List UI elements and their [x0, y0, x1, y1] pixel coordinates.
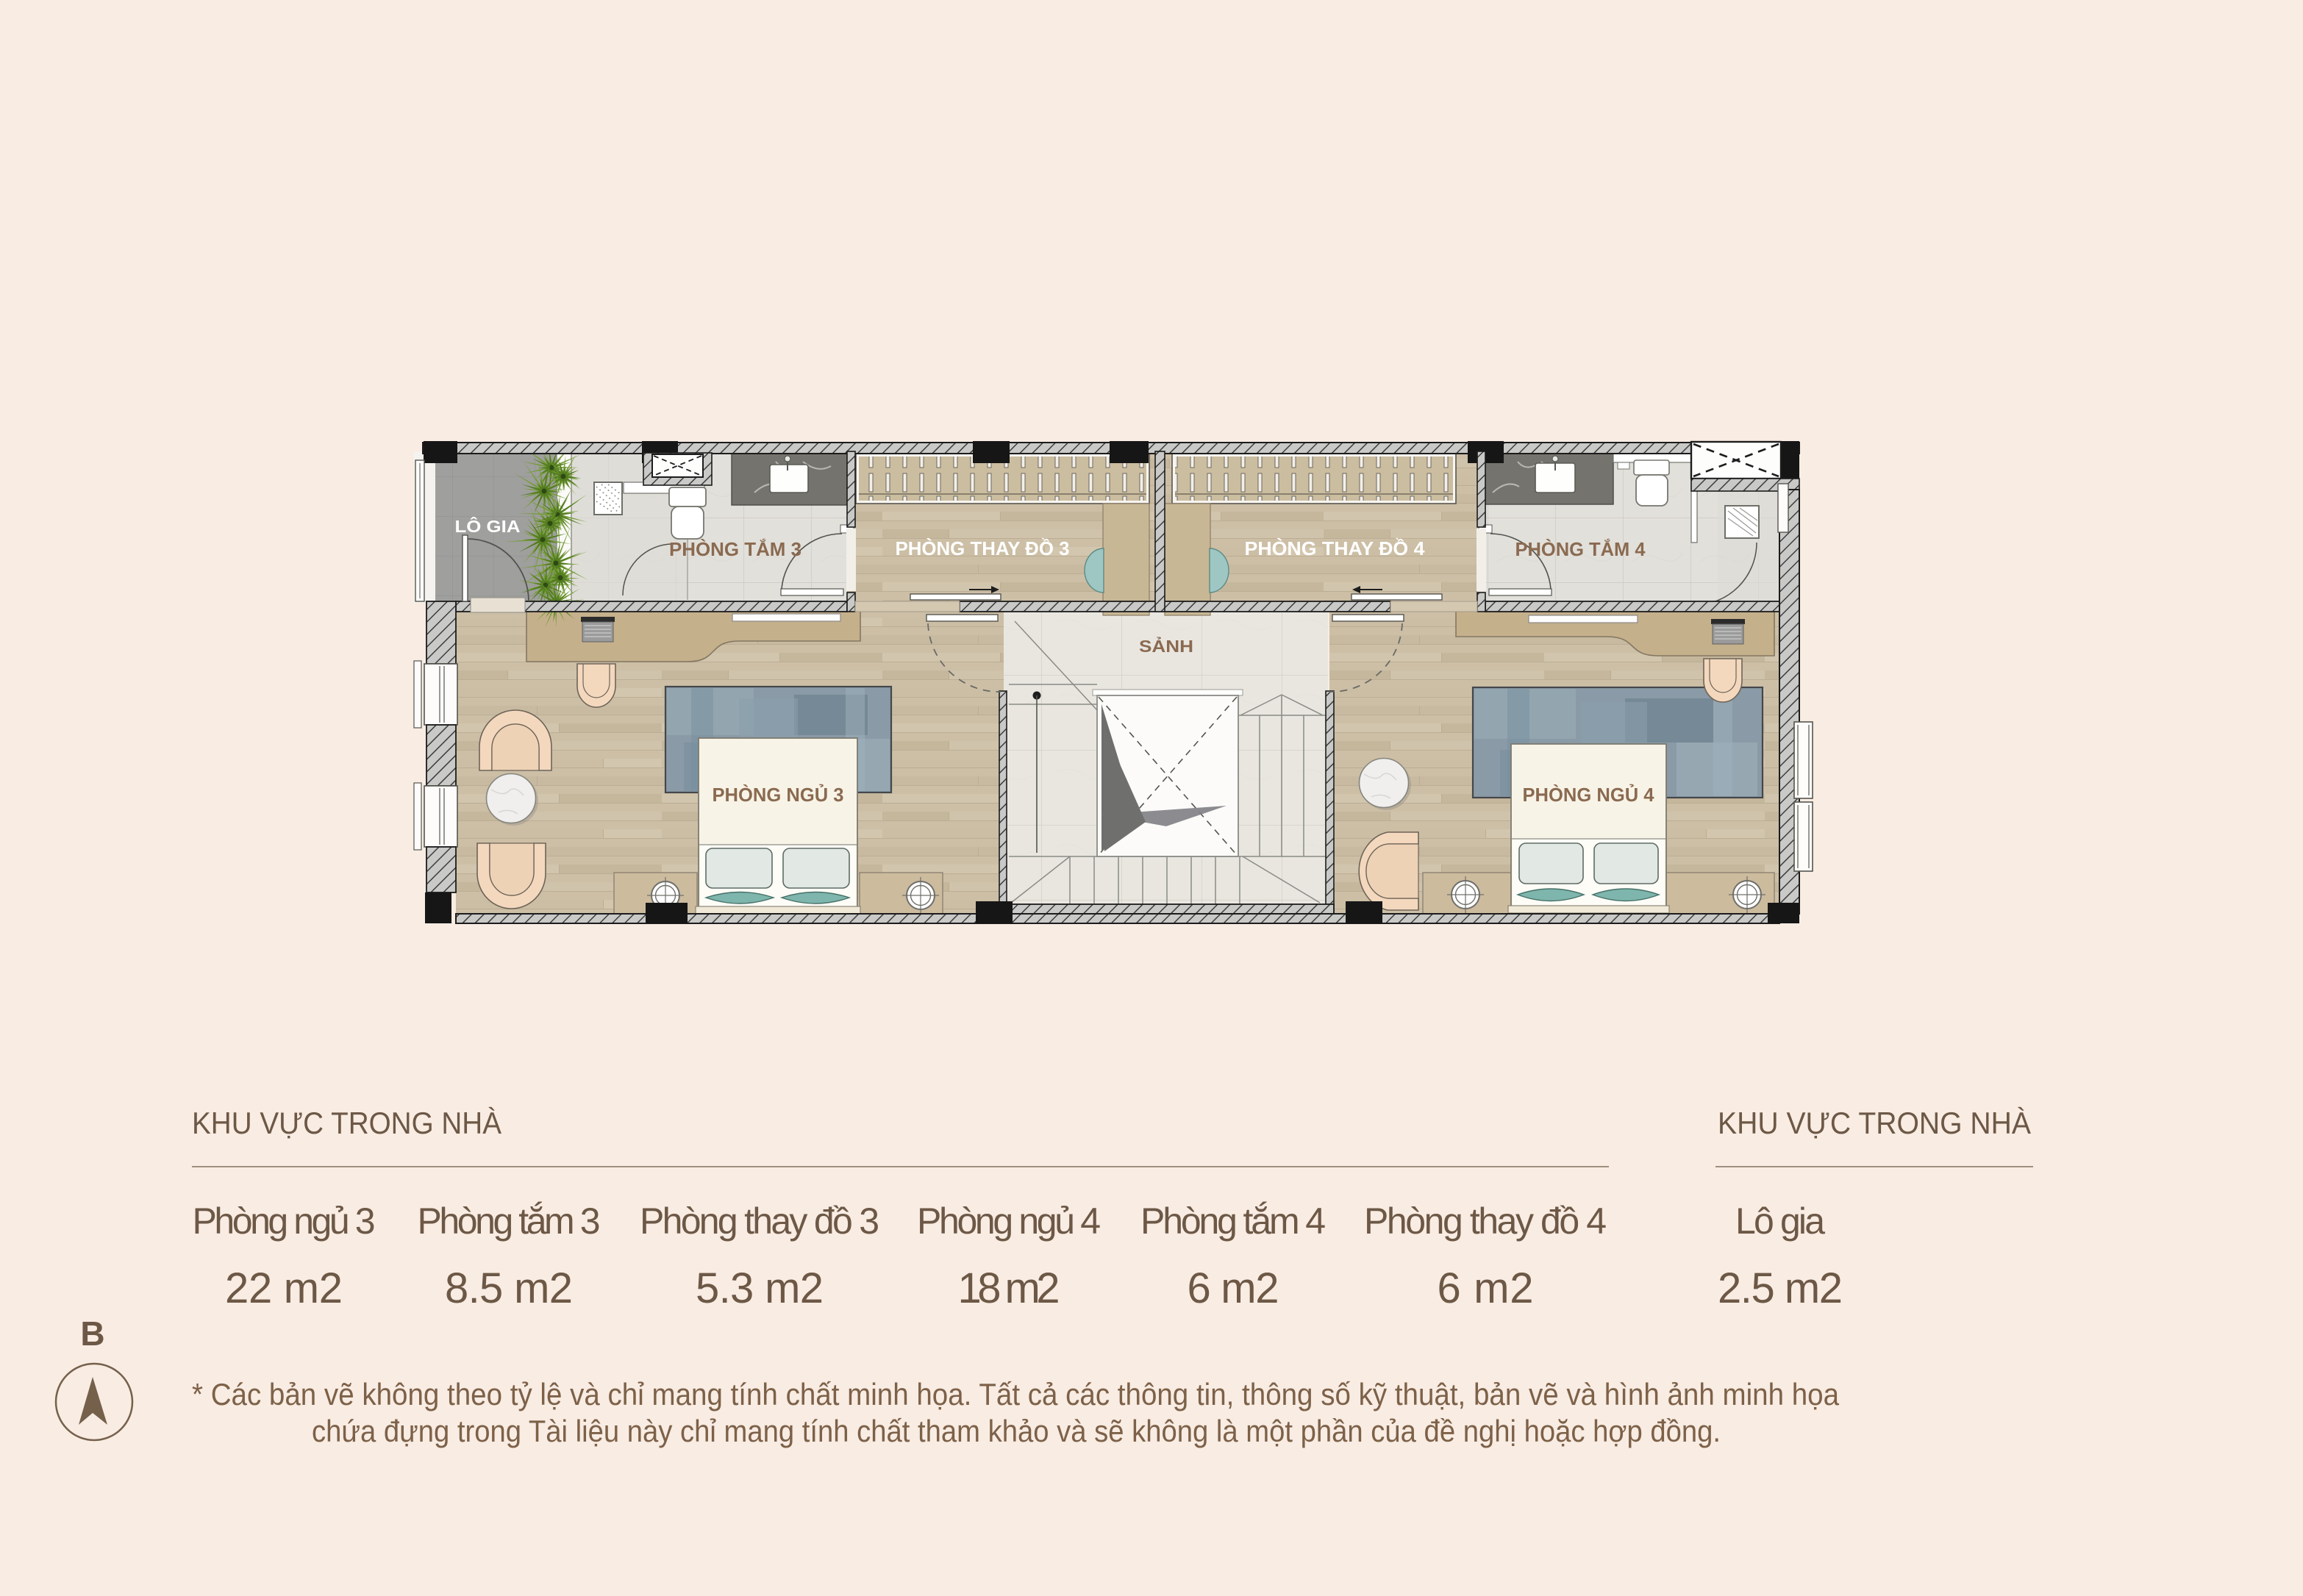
svg-text:18 m2: 18 m2: [958, 1264, 1060, 1312]
svg-text:Phòng tắm 4: Phòng tắm 4: [1140, 1200, 1326, 1242]
svg-text:Phòng ngủ 3: Phòng ngủ 3: [193, 1200, 376, 1242]
svg-text:PHÒNG THAY ĐỒ 4: PHÒNG THAY ĐỒ 4: [1245, 537, 1426, 559]
svg-text:KHU VỰC TRONG NHÀ: KHU VỰC TRONG NHÀ: [192, 1106, 501, 1140]
svg-text:LÔ GIA: LÔ GIA: [455, 516, 521, 536]
svg-text:Phòng ngủ 4: Phòng ngủ 4: [917, 1200, 1101, 1242]
svg-text:PHÒNG NGỦ 3: PHÒNG NGỦ 3: [713, 783, 844, 806]
svg-text:22 m2: 22 m2: [225, 1264, 343, 1312]
svg-text:PHÒNG TẮM 3: PHÒNG TẮM 3: [669, 538, 801, 560]
svg-text:chứa đựng trong Tài liệu này c: chứa đựng trong Tài liệu này chỉ mang tí…: [312, 1414, 1721, 1448]
svg-text:Lô gia: Lô gia: [1735, 1200, 1825, 1242]
svg-text:PHÒNG NGỦ 4: PHÒNG NGỦ 4: [1523, 783, 1655, 806]
svg-text:PHÒNG TẮM 4: PHÒNG TẮM 4: [1515, 538, 1646, 560]
svg-text:5.3 m2: 5.3 m2: [696, 1264, 824, 1312]
svg-text:PHÒNG THAY ĐỒ 3: PHÒNG THAY ĐỒ 3: [896, 537, 1070, 559]
svg-text:B: B: [80, 1314, 104, 1353]
svg-text:KHU VỰC TRONG NHÀ: KHU VỰC TRONG NHÀ: [1718, 1106, 2031, 1140]
svg-text:6 m2: 6 m2: [1188, 1264, 1279, 1312]
svg-text:Phòng thay đồ 4: Phòng thay đồ 4: [1364, 1200, 1607, 1242]
svg-text:8.5 m2: 8.5 m2: [445, 1264, 573, 1312]
svg-text:6 m2: 6 m2: [1438, 1264, 1534, 1312]
svg-text:2.5 m2: 2.5 m2: [1718, 1264, 1843, 1312]
svg-text:Phòng thay đồ 3: Phòng thay đồ 3: [640, 1200, 879, 1242]
svg-text:SẢNH: SẢNH: [1139, 635, 1193, 656]
svg-text:* Các bản vẽ không theo tỷ lệ: * Các bản vẽ không theo tỷ lệ và chỉ man…: [192, 1377, 1840, 1411]
svg-text:Phòng tắm 3: Phòng tắm 3: [418, 1200, 601, 1242]
